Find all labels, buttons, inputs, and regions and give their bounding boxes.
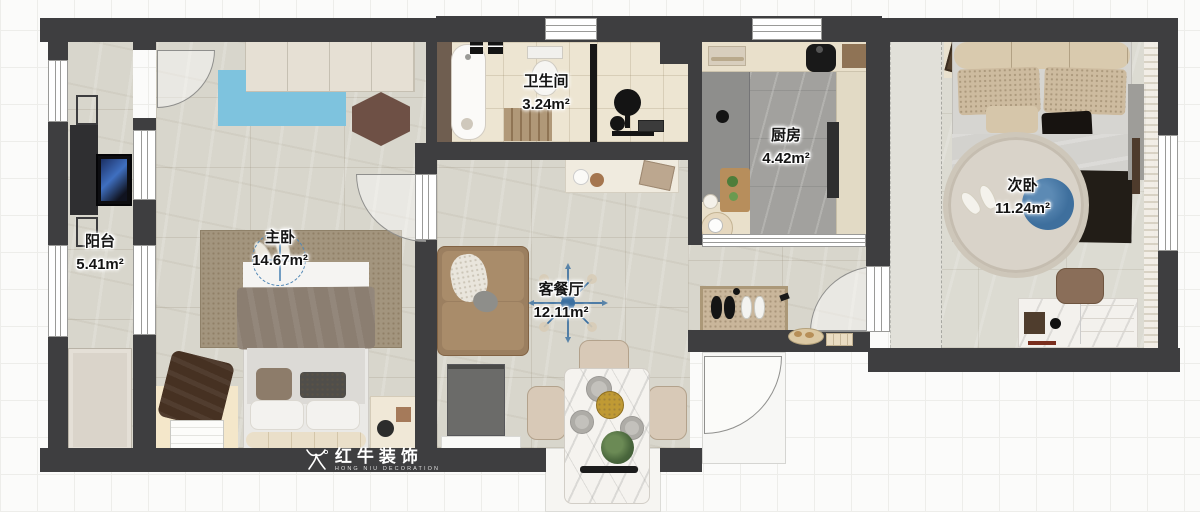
registered-mark [324,450,327,453]
room-name: 主卧 [220,226,340,249]
lace-curtain [1144,42,1158,348]
blue-rug-horizontal [218,92,346,126]
vegetable [729,192,738,201]
room-area: 11.24m² [965,197,1080,220]
bathtub-faucet [465,54,471,60]
mat-ornament [733,288,740,295]
monitor-screen [101,159,127,201]
room-label-second-bedroom: 次卧 11.24m² [965,174,1080,221]
desk-chair [1056,268,1104,304]
wall-kitchen-west [688,40,702,245]
gold-dish [596,391,624,419]
wall-top-west [40,18,440,42]
window-left-top [48,60,68,122]
dining-chair [648,386,687,440]
room-label-living-dining: 客餐厅 12.11m² [505,278,617,325]
master-door-leaf [415,174,437,240]
room-name: 客餐厅 [505,278,617,301]
vegetable [727,176,738,187]
brown-blanket [237,286,376,349]
desk-cup [1050,318,1061,329]
headboard-cushions [954,42,1130,69]
drying-rack-top [76,95,98,125]
desk-box [1024,312,1045,334]
shoe-bench [826,333,853,346]
room-name: 次卧 [965,174,1080,197]
wall-bottom-east [868,348,1180,372]
sink-faucet [816,46,823,53]
room-name: 阳台 [58,230,142,253]
cutting-board [708,46,746,66]
shoe-white [754,296,765,319]
desk-drawers [1080,303,1134,344]
pillow-dark [300,372,346,398]
pillow-small [986,106,1038,133]
room-area: 14.67m² [220,249,340,272]
room-label-kitchen: 厨房 4.42m² [738,124,834,171]
chair-stem [625,114,630,128]
bread [794,331,802,337]
balcony-desk [70,125,98,215]
kitchen-counter-right [836,72,866,235]
wall-bathroom-south [437,142,702,160]
wood-trim [1132,138,1140,194]
wall-top-east [878,18,1178,42]
brand-name-cn: 红牛装饰 [335,448,440,465]
wall-bedroom-living [415,143,437,174]
decor-plate [573,169,589,185]
shoe-black [711,296,722,319]
plate [703,194,718,209]
bench [638,120,664,132]
table-plant [601,431,634,464]
brand-text: 红牛装饰 HONG NIU DECORATION [335,448,440,473]
pillow-white [250,400,304,430]
brand-logo: 红牛装饰 HONG NIU DECORATION [262,447,482,473]
headboard-bolster [246,432,366,448]
bedroom2-door-leaf [866,266,890,332]
rolling-pin [711,57,744,61]
shoe-black [724,296,735,319]
wall-entry-east [866,40,890,266]
room-label-bathroom: 卫生间 3.24m² [498,70,594,117]
stove-burner [716,110,729,123]
pillow-white [306,400,360,430]
plate [570,410,594,434]
room-label-balcony: 阳台 5.41m² [58,230,142,277]
window-top-1 [545,18,597,40]
kitchen-sliding-door [702,234,866,247]
room-area: 12.11m² [505,301,617,324]
room-area: 4.42m² [738,147,834,170]
room-area: 3.24m² [498,93,594,116]
brand-name-en: HONG NIU DECORATION [335,467,440,473]
office-chair [614,89,641,116]
room-label-master-bedroom: 主卧 14.67m² [220,226,340,273]
decor-bowl [590,173,604,187]
shoe-white [741,296,752,319]
floorplan-canvas: 阳台 5.41m² 主卧 14.67m² 卫生间 3.24m² 厨房 4.42m… [0,0,1200,512]
bread [805,332,814,338]
window-balcony-1 [133,130,156,200]
kettle [708,218,723,233]
chopping-board [720,168,750,212]
wall-balcony-divider [133,335,156,450]
wardrobe-projection [890,42,942,348]
room-name: 厨房 [738,124,834,147]
wardrobe [245,40,415,92]
bathtub-surround [437,42,452,142]
wood-shelf [842,44,866,68]
pen-tray [1028,341,1056,345]
dining-chair [527,386,566,440]
wall-balcony-divider [133,118,156,130]
balcony-cabinet [68,348,132,452]
wall-bathroom-west [426,40,437,143]
monitor [96,154,132,206]
nightstand-bowl [377,420,394,437]
room-area: 5.41m² [58,253,142,276]
bathtub-drain [461,118,473,130]
wall-nook-corner [660,42,702,64]
vent-icon [470,42,483,54]
window-top-2 [752,18,822,40]
black-tray [580,466,638,473]
wall-bottom-bay [660,448,702,472]
pillow-speckled [1043,67,1127,116]
room-name: 卫生间 [498,70,594,93]
nightstand-box [396,407,411,422]
wall-balcony-divider [133,40,156,50]
window-right [1158,135,1178,251]
wall-bedroom-living [415,240,437,448]
media-cabinet [447,364,505,436]
stool [610,116,625,131]
toilet-tank [527,46,563,59]
pillow-brown [256,368,292,400]
vent-icon [488,42,503,54]
bull-icon [304,449,328,471]
